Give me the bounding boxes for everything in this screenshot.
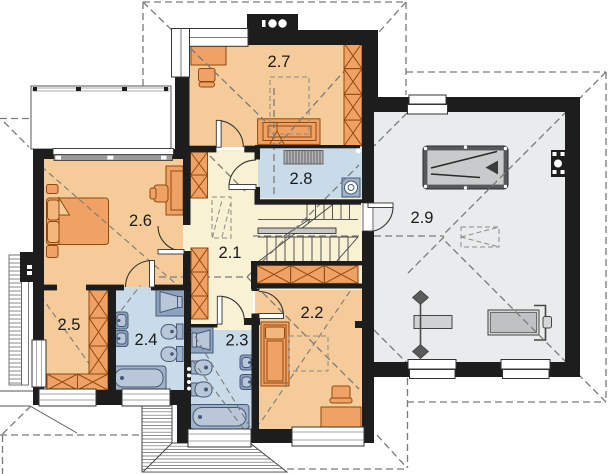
svg-text:2.9: 2.9 [411, 209, 434, 227]
svg-text:2.7: 2.7 [268, 53, 291, 71]
svg-text:2.8: 2.8 [290, 170, 313, 188]
svg-text:2.4: 2.4 [135, 331, 158, 349]
svg-text:2.5: 2.5 [58, 316, 81, 334]
svg-text:2.2: 2.2 [301, 304, 324, 322]
svg-text:2.3: 2.3 [226, 332, 249, 350]
svg-text:2.6: 2.6 [129, 212, 152, 230]
svg-text:2.1: 2.1 [219, 244, 242, 262]
